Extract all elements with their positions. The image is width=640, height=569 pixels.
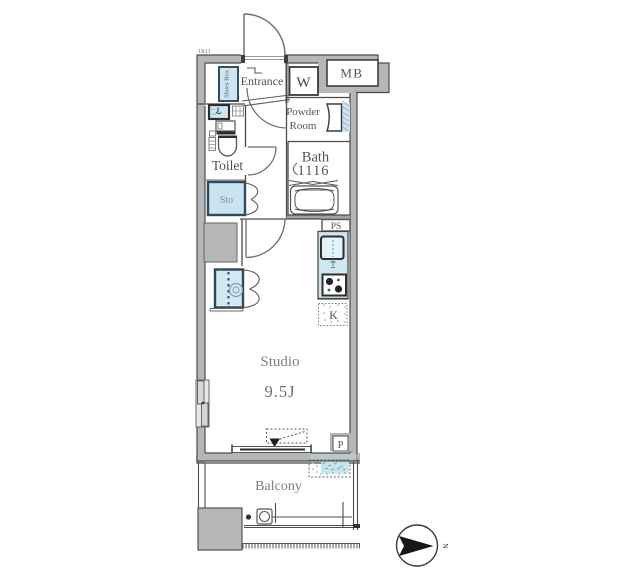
svg-text:PS: PS xyxy=(331,222,342,232)
svg-text:1811: 1811 xyxy=(198,48,211,55)
svg-text:W: W xyxy=(296,75,311,91)
svg-text:9.5J: 9.5J xyxy=(264,382,295,401)
svg-text:Powder: Powder xyxy=(286,106,320,118)
svg-text:Studio: Studio xyxy=(260,354,299,370)
svg-text:Toilet: Toilet xyxy=(212,158,244,173)
svg-text:K: K xyxy=(329,308,338,322)
svg-text:MB: MB xyxy=(340,66,363,81)
svg-text:1116: 1116 xyxy=(298,163,330,179)
svg-text:N: N xyxy=(441,543,450,549)
svg-text:Shoes Box: Shoes Box xyxy=(224,69,231,98)
svg-text:Balcony: Balcony xyxy=(255,479,302,494)
svg-text:P: P xyxy=(338,440,344,451)
svg-text:Sto: Sto xyxy=(220,195,233,206)
svg-text:Room: Room xyxy=(290,120,317,132)
svg-text:Entrance: Entrance xyxy=(241,74,284,88)
